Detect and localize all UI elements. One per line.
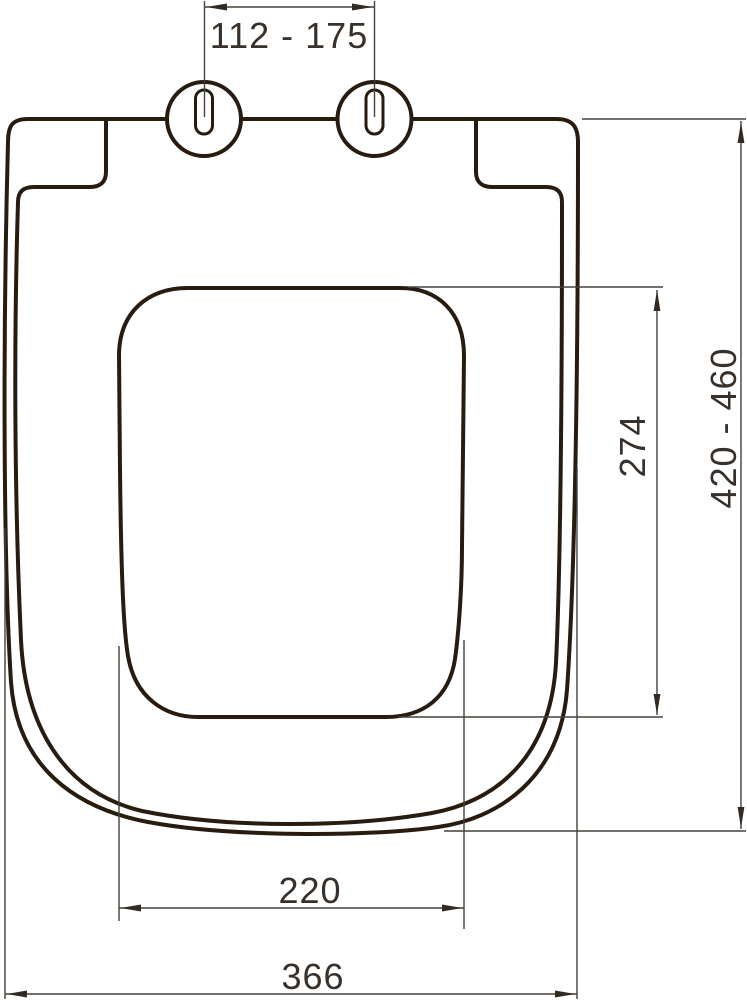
dim-overall-width: 366 bbox=[5, 468, 577, 999]
dim-hinge-spacing-label: 112 - 175 bbox=[210, 15, 368, 56]
arrowhead-down bbox=[654, 694, 661, 715]
technical-drawing-canvas: 112 - 175 420 - 460 274 220 bbox=[0, 0, 747, 1000]
dim-overall-length-label: 420 - 460 bbox=[703, 347, 744, 508]
dim-opening-length-label: 274 bbox=[612, 414, 653, 477]
arrowhead-left bbox=[7, 991, 28, 998]
arrowhead-right bbox=[555, 991, 576, 998]
toilet-seat-drawing: 112 - 175 420 - 460 274 220 bbox=[0, 0, 747, 1000]
dim-overall-length: 420 - 460 bbox=[444, 119, 746, 831]
dim-overall-width-label: 366 bbox=[281, 956, 344, 997]
arrowhead-down bbox=[738, 807, 745, 828]
arrowhead-up bbox=[654, 290, 661, 311]
arrowhead-left bbox=[206, 4, 227, 11]
dim-opening-width: 220 bbox=[119, 640, 464, 929]
arrowhead-left bbox=[121, 905, 142, 912]
arrowhead-right bbox=[352, 4, 373, 11]
seat-outer-outline bbox=[5, 119, 578, 834]
product-outlines bbox=[5, 82, 578, 834]
seat-opening-outline bbox=[119, 288, 464, 717]
dim-opening-length: 274 bbox=[398, 287, 663, 717]
dim-opening-width-label: 220 bbox=[278, 870, 341, 911]
arrowhead-up bbox=[738, 122, 745, 143]
arrowhead-right bbox=[442, 905, 463, 912]
